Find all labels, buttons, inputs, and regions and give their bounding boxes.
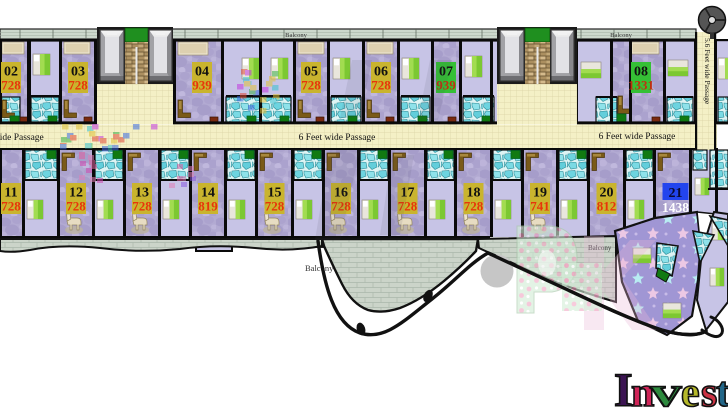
svg-text:t: t (716, 370, 728, 409)
svg-text:728: 728 (1, 199, 21, 214)
svg-text:6 Feet wide Passage: 6 Feet wide Passage (299, 133, 376, 143)
svg-text:728: 728 (265, 199, 285, 214)
svg-text:6 Feet wide Passage: 6 Feet wide Passage (0, 133, 44, 143)
svg-text:s: s (701, 370, 717, 409)
svg-text:21: 21 (669, 186, 683, 201)
svg-text:1331: 1331 (628, 78, 654, 93)
svg-text:728: 728 (1, 78, 21, 93)
svg-text:728: 728 (464, 199, 484, 214)
svg-text:728: 728 (301, 78, 321, 93)
svg-text:728: 728 (132, 199, 152, 214)
svg-text:Balcony: Balcony (610, 32, 632, 39)
svg-text:5.6 Feet wide Passage: 5.6 Feet wide Passage (703, 38, 712, 105)
svg-text:I: I (614, 364, 633, 409)
svg-text:Balcony: Balcony (305, 263, 334, 273)
svg-text:939: 939 (192, 78, 212, 93)
svg-text:741: 741 (530, 199, 550, 214)
svg-text:819: 819 (198, 199, 218, 214)
svg-text:728: 728 (68, 78, 88, 93)
svg-text:v: v (650, 368, 682, 409)
svg-text:812: 812 (597, 199, 617, 214)
svg-text:Balcony: Balcony (285, 32, 307, 39)
svg-text:6 Feet wide Passage: 6 Feet wide Passage (599, 132, 676, 142)
svg-text:728: 728 (66, 199, 86, 214)
svg-text:728: 728 (371, 78, 391, 93)
svg-text:e: e (681, 370, 700, 409)
